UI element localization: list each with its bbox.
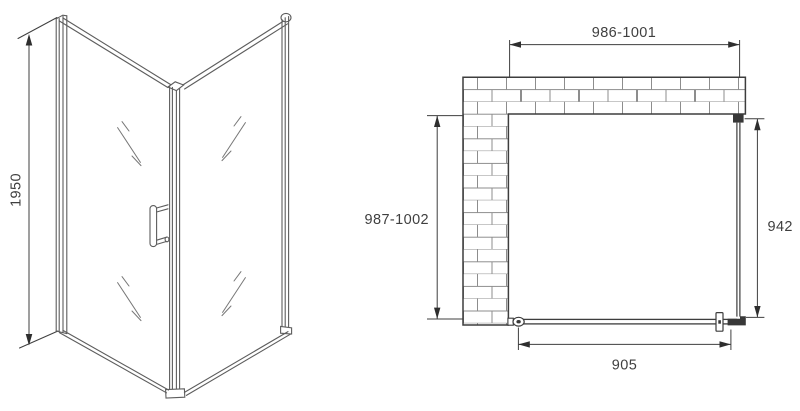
- door-handle-3d: [150, 205, 169, 247]
- height-dimension-label: 1950: [9, 173, 25, 207]
- dimension-door-width: 905: [518, 328, 731, 374]
- height-dimension: 1950: [9, 18, 59, 349]
- arrow-right-icon: [720, 341, 731, 347]
- corner-connector: [728, 316, 746, 325]
- perspective-view: 1950: [9, 13, 292, 398]
- door-hinge-pin: [516, 320, 520, 323]
- extension-line-bottom: [20, 331, 59, 348]
- dimension-left-depth: 987-1002: [365, 116, 463, 319]
- door-width-label: 905: [612, 358, 637, 374]
- arrow-right-icon: [728, 41, 739, 47]
- arrow-down-icon: [754, 306, 760, 317]
- arrow-up-icon: [754, 119, 760, 130]
- extension-line-top: [18, 18, 57, 39]
- shower-enclosure-drawing: 1950: [0, 0, 800, 411]
- arrow-up-icon: [434, 116, 440, 127]
- dimension-right-depth: 942: [745, 119, 793, 318]
- glass-reflection-marks: [118, 117, 246, 321]
- profile-top-cap: [56, 15, 67, 19]
- door-bottom-rail: [59, 330, 168, 392]
- side-panel-plan: [733, 114, 744, 317]
- left-depth-label: 987-1002: [365, 212, 429, 228]
- arrow-left-icon: [510, 41, 521, 47]
- brick-wall: [463, 77, 745, 325]
- arrow-down-icon: [434, 308, 440, 319]
- wall-bracket: [733, 114, 744, 123]
- door-glass-bar: [512, 319, 737, 324]
- dimension-top-width: 986-1001: [510, 25, 740, 77]
- technical-drawing-canvas: 1950: [0, 0, 800, 411]
- door-handle-plan: [716, 313, 723, 332]
- arrow-down-icon: [26, 334, 33, 346]
- side-bottom-rail: [184, 332, 290, 396]
- left-wall-profile: [56, 15, 67, 333]
- side-top-rail: [182, 20, 288, 89]
- top-width-label: 986-1001: [592, 25, 656, 41]
- corner-post-top-cap: [168, 82, 184, 91]
- arrow-up-icon: [26, 34, 33, 46]
- right-panel-profile: [281, 13, 292, 334]
- door-panel-plan: [508, 313, 746, 332]
- plan-view: 986-1001 987-1002 942 905: [365, 25, 793, 374]
- right-depth-label: 942: [768, 219, 793, 235]
- arrow-left-icon: [518, 341, 529, 347]
- door-top-rail: [59, 18, 170, 88]
